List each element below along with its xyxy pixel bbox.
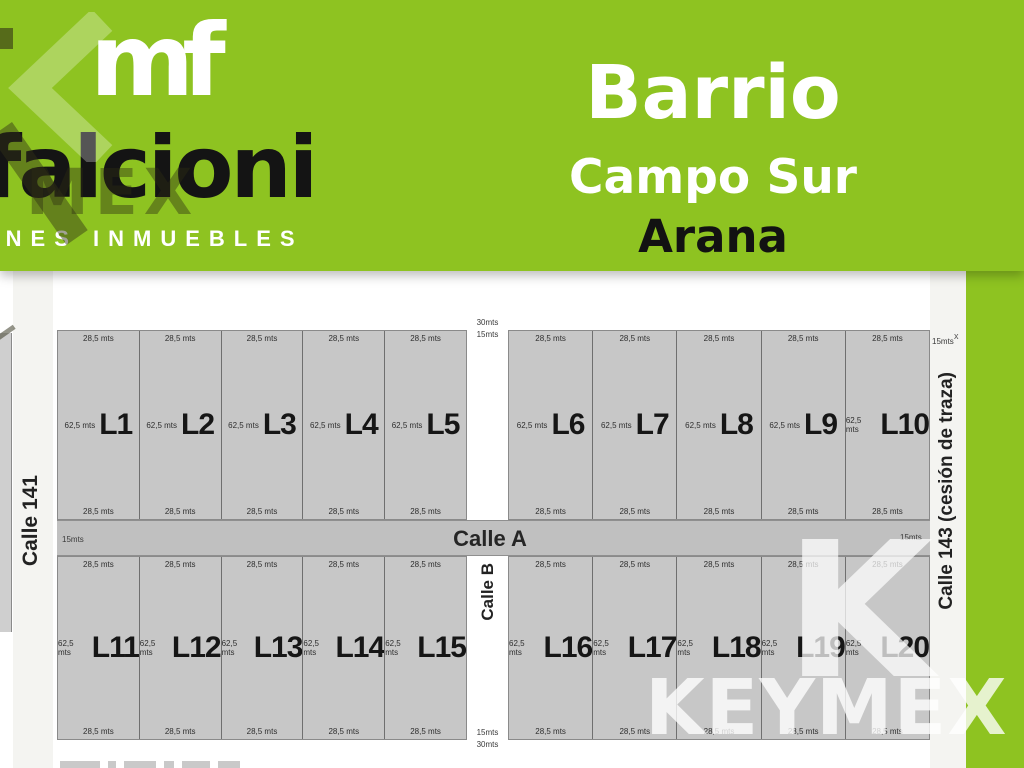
lot-front-measure: 28,5 mts [788, 334, 819, 343]
lot-front-measure: 28,5 mts [247, 334, 278, 343]
lot-number-label: L13 [254, 631, 303, 665]
calle-143-width-label: 15mts [932, 337, 954, 346]
lot-L7: 28,5 mts62,5 mtsL728,5 mts [592, 331, 676, 519]
lot-center-labels: 62,5 mtsL7 [601, 408, 669, 442]
lot-front-measure: 28,5 mts [328, 727, 359, 736]
lot-depth-measure: 62,5 mts [769, 421, 800, 430]
lot-depth-measure: 62,5 mts [509, 639, 540, 657]
lot-depth-measure: 62,5 mts [228, 421, 259, 430]
lot-depth-measure: 62,5 mts [685, 421, 716, 430]
lot-front-measure: 28,5 mts [704, 334, 735, 343]
calle-b-width-labels-top: 30mts 15mts [467, 317, 508, 341]
lot-center-labels: 62,5 mtsL16 [509, 631, 592, 665]
lot-center-labels: 62,5 mtsL3 [228, 408, 296, 442]
lot-center-labels: 62,5 mtsL17 [593, 631, 676, 665]
lot-L9: 28,5 mts62,5 mtsL928,5 mts [761, 331, 845, 519]
lot-center-labels: 62,5 mtsL12 [140, 631, 221, 665]
lot-front-measure: 28,5 mts [410, 334, 441, 343]
lot-front-measure: 28,5 mts [704, 507, 735, 516]
keymex-watermark-fragment [0, 28, 13, 49]
lot-L6: 28,5 mts62,5 mtsL628,5 mts [509, 331, 592, 519]
lot-L4: 28,5 mts62,5 mtsL428,5 mts [302, 331, 384, 519]
lot-depth-measure: 62,5 mts [146, 421, 177, 430]
width-label: 30mts [467, 739, 508, 751]
calle-b-width-labels-bottom: 15mts 30mts [467, 727, 508, 751]
lot-front-measure: 28,5 mts [247, 507, 278, 516]
lot-center-labels: 62,5 mtsL5 [392, 408, 460, 442]
lot-center-labels: 62,5 mtsL9 [769, 408, 837, 442]
lot-center-labels: 62,5 mtsL18 [677, 631, 760, 665]
lot-front-measure: 28,5 mts [535, 727, 566, 736]
lot-number-label: L15 [417, 631, 466, 665]
lot-depth-measure: 62,5 mts [593, 639, 624, 657]
lot-L15: 28,5 mts62,5 mtsL1528,5 mts [384, 557, 466, 739]
lot-depth-measure: 62,5 mts [310, 421, 341, 430]
lot-number-label: L4 [345, 408, 378, 442]
lot-L11: 28,5 mts62,5 mtsL1128,5 mts [58, 557, 139, 739]
lot-L3: 28,5 mts62,5 mtsL328,5 mts [221, 331, 303, 519]
lot-depth-measure: 62,5 mts [140, 639, 168, 657]
lot-front-measure: 28,5 mts [83, 560, 114, 569]
lot-number-label: L17 [628, 631, 677, 665]
lot-center-labels: 62,5 mtsL10 [846, 408, 929, 442]
lot-depth-measure: 62,5 mts [601, 421, 632, 430]
lot-L16: 28,5 mts62,5 mtsL1628,5 mts [509, 557, 592, 739]
lot-depth-measure: 62,5 mts [58, 639, 88, 657]
keymex-watermark-brand: KEYMEX [645, 670, 1008, 747]
lot-number-label: L18 [712, 631, 761, 665]
lot-front-measure: 28,5 mts [247, 560, 278, 569]
calle-a-label: Calle A [395, 526, 585, 552]
lot-L8: 28,5 mts62,5 mtsL828,5 mts [676, 331, 760, 519]
lot-center-labels: 62,5 mtsL2 [146, 408, 214, 442]
header-banner: mf falcioni BIENES INMUEBLES Barrio Camp… [0, 0, 1024, 271]
lot-front-measure: 28,5 mts [247, 727, 278, 736]
lot-number-label: L8 [720, 408, 753, 442]
lot-front-measure: 28,5 mts [83, 507, 114, 516]
lot-L2: 28,5 mts62,5 mtsL228,5 mts [139, 331, 221, 519]
lot-front-measure: 28,5 mts [165, 727, 196, 736]
width-label: 30mts [467, 317, 508, 329]
lot-number-label: L3 [263, 408, 296, 442]
lot-number-label: L10 [880, 408, 929, 442]
lot-front-measure: 28,5 mts [328, 507, 359, 516]
lot-number-label: L2 [181, 408, 214, 442]
lot-L14: 28,5 mts62,5 mtsL1428,5 mts [302, 557, 384, 739]
lot-front-measure: 28,5 mts [83, 727, 114, 736]
calle-b-label: Calle B [467, 557, 508, 627]
page-title: Barrio [478, 50, 948, 136]
lot-L10: 28,5 mts62,5 mtsL1028,5 mts [845, 331, 929, 519]
lot-number-label: L11 [92, 631, 139, 665]
lot-depth-measure: 62,5 mts [65, 421, 96, 430]
lot-front-measure: 28,5 mts [704, 560, 735, 569]
lot-front-measure: 28,5 mts [165, 560, 196, 569]
lot-front-measure: 28,5 mts [535, 507, 566, 516]
lot-number-label: L9 [804, 408, 837, 442]
lot-number-label: L16 [544, 631, 593, 665]
width-label: 15mts [467, 727, 508, 739]
lot-front-measure: 28,5 mts [328, 560, 359, 569]
lot-depth-measure: 62,5 mts [222, 639, 250, 657]
lot-front-measure: 28,5 mts [535, 560, 566, 569]
calle-a-width-label: 15mts [62, 535, 84, 544]
block-bottom-left: 28,5 mts62,5 mtsL1128,5 mts28,5 mts62,5 … [57, 556, 467, 740]
keymex-watermark-partial-text: MEX [26, 156, 198, 229]
calle-141-label: Calle 141 [8, 431, 54, 611]
lot-number-label: L1 [99, 408, 132, 442]
lot-front-measure: 28,5 mts [535, 334, 566, 343]
lot-L13: 28,5 mts62,5 mtsL1328,5 mts [221, 557, 303, 739]
lot-front-measure: 28,5 mts [165, 334, 196, 343]
lot-front-measure: 28,5 mts [83, 334, 114, 343]
lot-front-measure: 28,5 mts [410, 507, 441, 516]
width-label: 15mts [467, 329, 508, 341]
lot-depth-measure: 62,5 mts [846, 416, 877, 434]
page-subtitle: Campo Sur [478, 150, 948, 205]
cutoff-note-marks [60, 757, 300, 768]
lot-front-measure: 28,5 mts [872, 334, 903, 343]
lot-center-labels: 62,5 mtsL15 [385, 631, 466, 665]
lot-L12: 28,5 mts62,5 mtsL1228,5 mts [139, 557, 221, 739]
lot-L1: 28,5 mts62,5 mtsL128,5 mts [58, 331, 139, 519]
lot-center-labels: 62,5 mtsL13 [222, 631, 303, 665]
lot-number-label: L7 [636, 408, 669, 442]
lot-front-measure: 28,5 mts [410, 560, 441, 569]
survey-tick-mark: x [954, 331, 959, 341]
falcioni-tagline: BIENES INMUEBLES [0, 226, 304, 252]
lot-front-measure: 28,5 mts [619, 507, 650, 516]
lot-number-label: L6 [551, 408, 584, 442]
lot-number-label: L12 [172, 631, 221, 665]
block-top-right: 28,5 mts62,5 mtsL628,5 mts28,5 mts62,5 m… [508, 330, 930, 520]
lot-depth-measure: 62,5 mts [392, 421, 423, 430]
lot-center-labels: 62,5 mtsL4 [310, 408, 378, 442]
lot-front-measure: 28,5 mts [619, 560, 650, 569]
page-subtitle-location: Arana [478, 210, 948, 263]
lot-number-label: L14 [335, 631, 384, 665]
lot-center-labels: 62,5 mtsL11 [58, 631, 139, 665]
lot-L5: 28,5 mts62,5 mtsL528,5 mts [384, 331, 466, 519]
lot-depth-measure: 62,5 mts [303, 639, 331, 657]
lot-depth-measure: 62,5 mts [517, 421, 548, 430]
lot-front-measure: 28,5 mts [328, 334, 359, 343]
lot-center-labels: 62,5 mtsL14 [303, 631, 384, 665]
lot-front-measure: 28,5 mts [410, 727, 441, 736]
block-top-left: 28,5 mts62,5 mtsL128,5 mts28,5 mts62,5 m… [57, 330, 467, 520]
lot-front-measure: 28,5 mts [165, 507, 196, 516]
lot-depth-measure: 62,5 mts [677, 639, 708, 657]
lot-depth-measure: 62,5 mts [385, 639, 413, 657]
lot-number-label: L5 [426, 408, 459, 442]
lot-center-labels: 62,5 mtsL1 [65, 408, 133, 442]
lot-front-measure: 28,5 mts [619, 334, 650, 343]
lot-center-labels: 62,5 mtsL8 [685, 408, 753, 442]
lot-center-labels: 62,5 mtsL6 [517, 408, 585, 442]
